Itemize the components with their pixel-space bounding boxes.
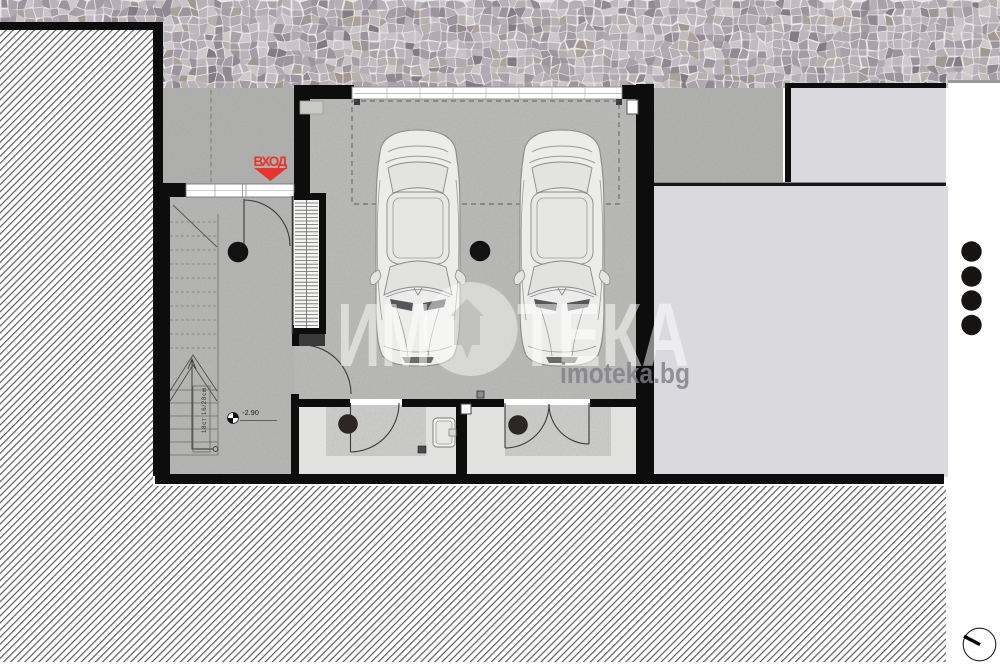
svg-text:ВХОД: ВХОД	[254, 154, 288, 169]
svg-text:ИМ: ИМ	[337, 286, 431, 386]
svg-text:18ст 16/28см: 18ст 16/28см	[202, 388, 208, 433]
svg-text:-2.90: -2.90	[242, 408, 259, 417]
svg-text:imoteka.bg: imoteka.bg	[560, 358, 690, 390]
